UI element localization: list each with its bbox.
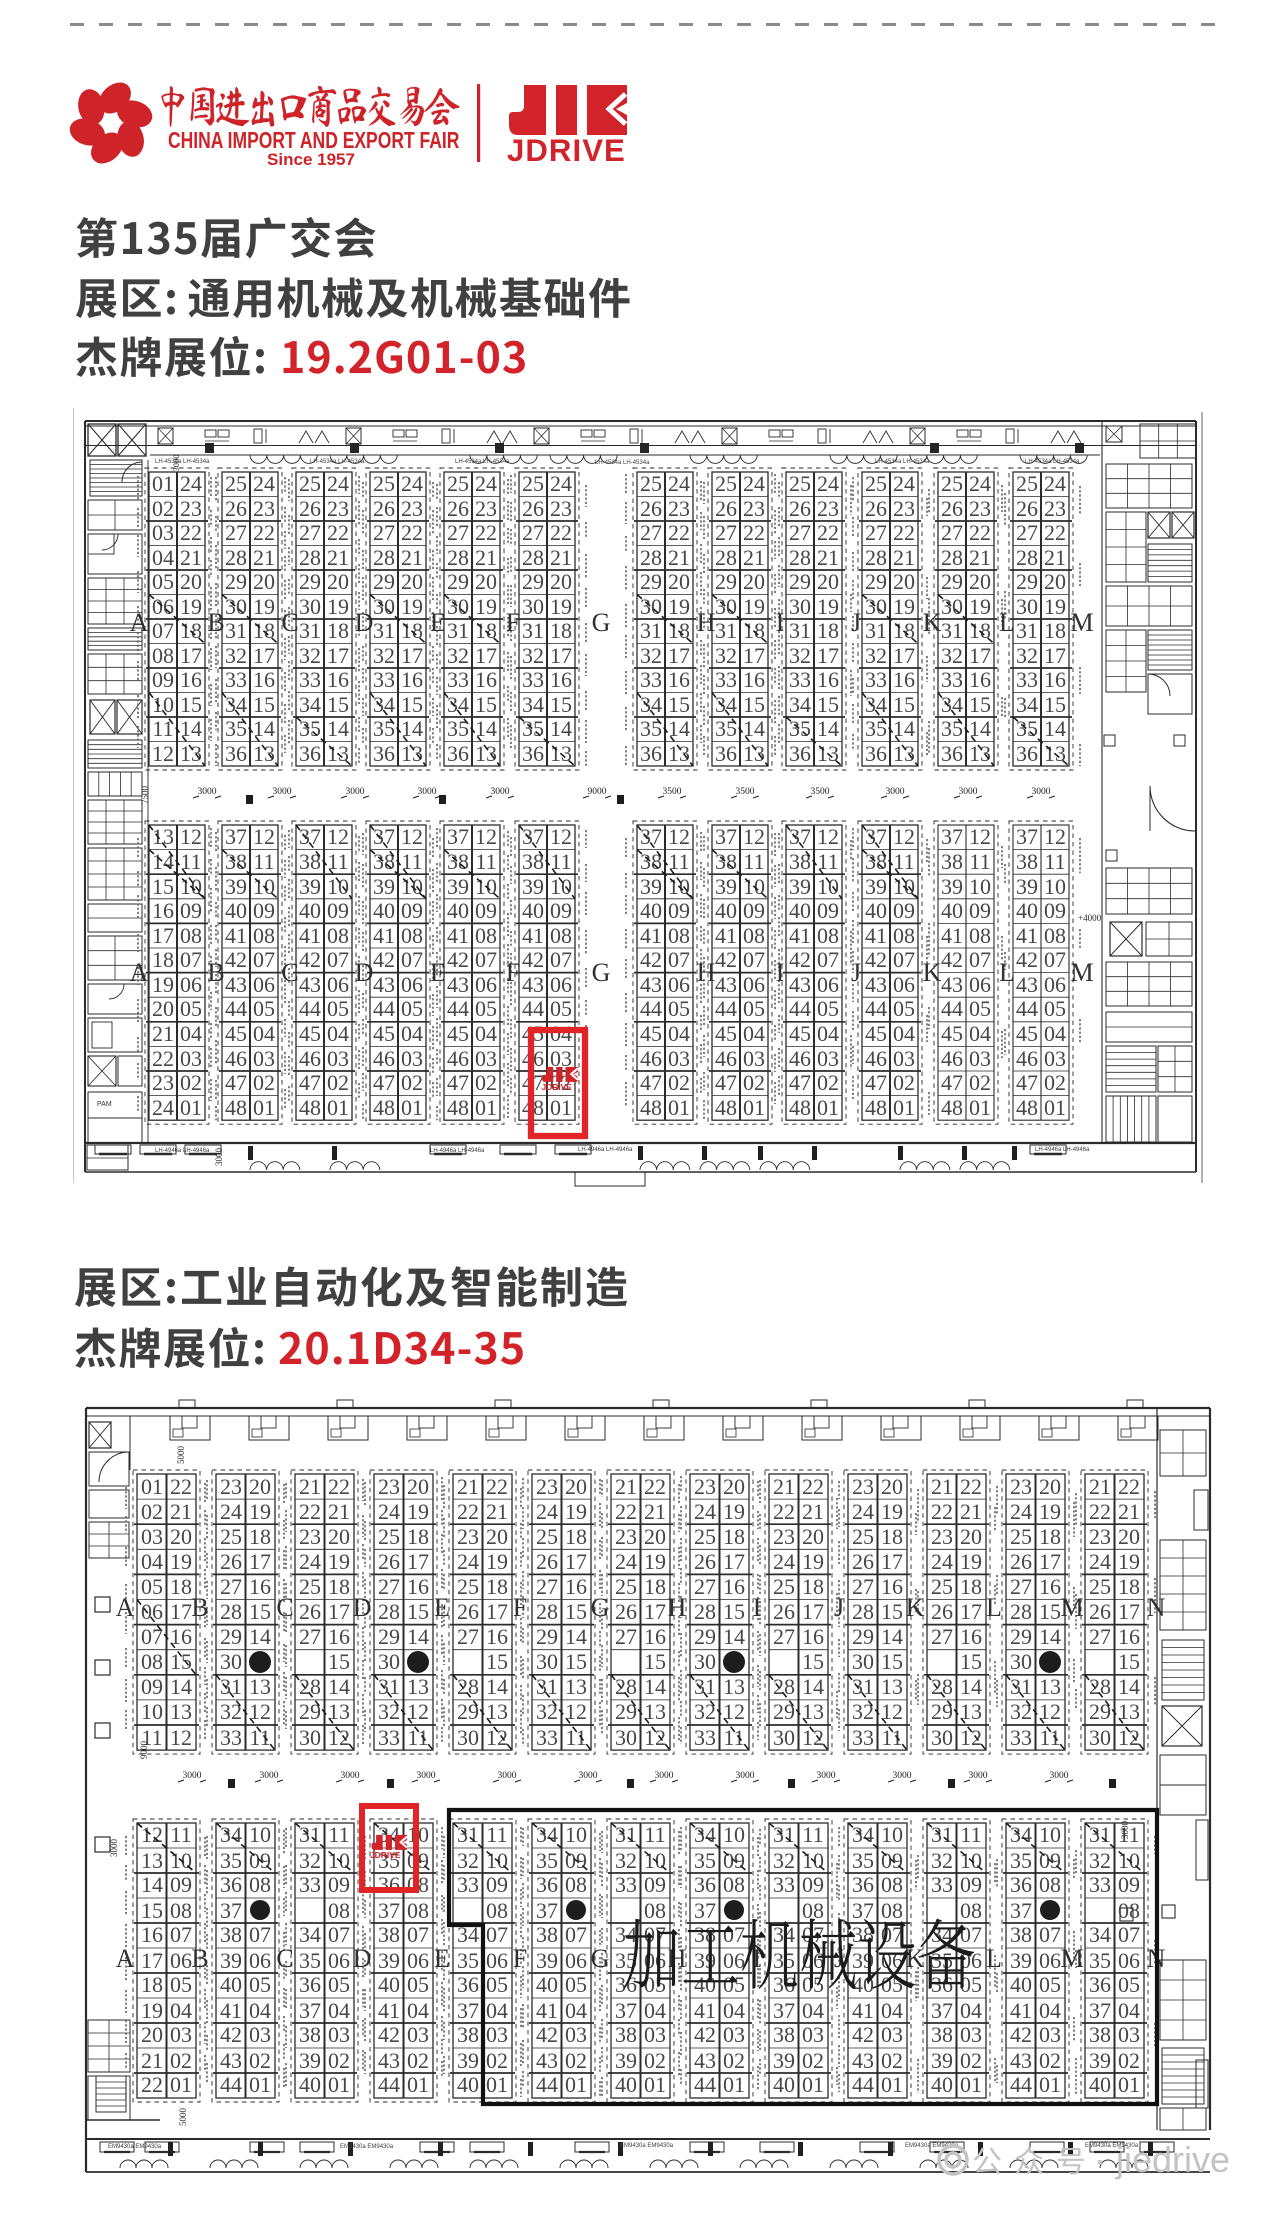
svg-text:26: 26 bbox=[865, 496, 887, 521]
svg-text:23: 23 bbox=[931, 1524, 953, 1549]
svg-text:A: A bbox=[130, 608, 149, 637]
svg-text:45: 45 bbox=[941, 1021, 963, 1046]
svg-text:12: 12 bbox=[550, 824, 572, 849]
svg-text:13: 13 bbox=[475, 741, 497, 766]
svg-text:34: 34 bbox=[852, 1822, 874, 1847]
svg-text:24: 24 bbox=[378, 1499, 400, 1524]
svg-text:07: 07 bbox=[550, 947, 572, 972]
svg-text:03: 03 bbox=[644, 2022, 666, 2047]
svg-text:08: 08 bbox=[1118, 1898, 1140, 1923]
svg-text:08: 08 bbox=[1044, 923, 1066, 948]
svg-text:17: 17 bbox=[253, 643, 275, 668]
svg-text:04: 04 bbox=[802, 1998, 824, 2023]
svg-text:19: 19 bbox=[141, 1998, 163, 2023]
svg-text:08: 08 bbox=[141, 1649, 163, 1674]
svg-text:25: 25 bbox=[865, 471, 887, 496]
svg-text:08: 08 bbox=[723, 1872, 745, 1897]
svg-text:G: G bbox=[591, 1944, 610, 1973]
svg-text:31: 31 bbox=[1016, 618, 1038, 643]
svg-text:40: 40 bbox=[522, 898, 544, 923]
svg-text:19: 19 bbox=[401, 594, 423, 619]
svg-text:03: 03 bbox=[881, 2022, 903, 2047]
svg-text:47: 47 bbox=[715, 1070, 737, 1095]
svg-text:H: H bbox=[668, 1593, 687, 1622]
svg-text:43: 43 bbox=[865, 972, 887, 997]
svg-text:40: 40 bbox=[789, 898, 811, 923]
svg-text:01: 01 bbox=[817, 1095, 839, 1120]
svg-text:D: D bbox=[353, 1593, 372, 1622]
svg-text:23: 23 bbox=[773, 1524, 795, 1549]
svg-text:09: 09 bbox=[550, 898, 572, 923]
svg-text:19: 19 bbox=[969, 594, 991, 619]
svg-text:34: 34 bbox=[615, 1922, 637, 1947]
svg-text:17: 17 bbox=[152, 923, 174, 948]
svg-text:25: 25 bbox=[373, 471, 395, 496]
svg-text:40: 40 bbox=[694, 1972, 716, 1997]
svg-text:3000: 3000 bbox=[1050, 1771, 1069, 1781]
svg-text:21: 21 bbox=[1044, 545, 1066, 570]
svg-text:03: 03 bbox=[328, 2022, 350, 2047]
svg-text:3000: 3000 bbox=[109, 1839, 119, 1858]
svg-text:20: 20 bbox=[141, 2022, 163, 2047]
svg-text:47: 47 bbox=[789, 1070, 811, 1095]
svg-text:33: 33 bbox=[1010, 1725, 1032, 1750]
svg-text:39: 39 bbox=[715, 874, 737, 899]
svg-text:16: 16 bbox=[817, 667, 839, 692]
svg-text:06: 06 bbox=[152, 594, 174, 619]
svg-text:04: 04 bbox=[407, 1998, 429, 2023]
svg-text:12: 12 bbox=[817, 824, 839, 849]
svg-text:26: 26 bbox=[220, 1549, 242, 1574]
svg-text:D: D bbox=[355, 958, 374, 987]
svg-text:18: 18 bbox=[1039, 1524, 1061, 1549]
svg-text:14: 14 bbox=[1118, 1674, 1140, 1699]
svg-text:38: 38 bbox=[1089, 2022, 1111, 2047]
svg-text:29: 29 bbox=[1016, 569, 1038, 594]
svg-text:30: 30 bbox=[773, 1725, 795, 1750]
svg-text:05: 05 bbox=[1039, 1972, 1061, 1997]
svg-text:19: 19 bbox=[881, 1499, 903, 1524]
svg-text:18: 18 bbox=[152, 947, 174, 972]
svg-text:26: 26 bbox=[694, 1549, 716, 1574]
svg-text:14: 14 bbox=[565, 1624, 587, 1649]
svg-text:30: 30 bbox=[378, 1649, 400, 1674]
svg-text:02: 02 bbox=[893, 1070, 915, 1095]
svg-text:02: 02 bbox=[960, 2048, 982, 2073]
svg-text:K: K bbox=[923, 608, 942, 637]
svg-text:13: 13 bbox=[881, 1674, 903, 1699]
svg-text:38: 38 bbox=[378, 1922, 400, 1947]
svg-text:3500: 3500 bbox=[736, 787, 755, 797]
svg-text:16: 16 bbox=[644, 1624, 666, 1649]
svg-text:13: 13 bbox=[141, 1848, 163, 1873]
svg-text:05: 05 bbox=[141, 1574, 163, 1599]
svg-text:33: 33 bbox=[715, 667, 737, 692]
svg-text:22: 22 bbox=[401, 520, 423, 545]
svg-text:43: 43 bbox=[1016, 972, 1038, 997]
svg-text:28: 28 bbox=[789, 545, 811, 570]
svg-text:05: 05 bbox=[817, 996, 839, 1021]
svg-text:31: 31 bbox=[715, 618, 737, 643]
svg-text:20: 20 bbox=[893, 569, 915, 594]
svg-text:L: L bbox=[999, 958, 1015, 987]
svg-text:24: 24 bbox=[220, 1499, 242, 1524]
svg-text:01: 01 bbox=[141, 1474, 163, 1499]
svg-text:B: B bbox=[191, 1593, 208, 1622]
svg-text:12: 12 bbox=[969, 824, 991, 849]
svg-text:46: 46 bbox=[225, 1046, 247, 1071]
svg-text:15: 15 bbox=[401, 692, 423, 717]
svg-text:K: K bbox=[906, 1593, 925, 1622]
svg-text:01: 01 bbox=[407, 2072, 429, 2097]
svg-text:03: 03 bbox=[407, 2022, 429, 2047]
svg-text:J: J bbox=[851, 608, 861, 637]
svg-text:26: 26 bbox=[773, 1599, 795, 1624]
svg-text:40: 40 bbox=[715, 898, 737, 923]
svg-text:08: 08 bbox=[328, 1898, 350, 1923]
svg-text:17: 17 bbox=[486, 1599, 508, 1624]
svg-text:33: 33 bbox=[225, 667, 247, 692]
svg-text:18: 18 bbox=[723, 1524, 745, 1549]
svg-text:29: 29 bbox=[852, 1624, 874, 1649]
svg-text:02: 02 bbox=[743, 1070, 765, 1095]
svg-text:22: 22 bbox=[893, 520, 915, 545]
svg-text:36: 36 bbox=[299, 1972, 321, 1997]
svg-text:27: 27 bbox=[1089, 1624, 1111, 1649]
svg-text:20: 20 bbox=[180, 569, 202, 594]
svg-text:21: 21 bbox=[327, 545, 349, 570]
svg-text:14: 14 bbox=[881, 1624, 903, 1649]
svg-text:L: L bbox=[986, 1944, 1002, 1973]
svg-text:34: 34 bbox=[447, 692, 469, 717]
svg-text:02: 02 bbox=[475, 1070, 497, 1095]
svg-text:19: 19 bbox=[668, 594, 690, 619]
svg-text:06: 06 bbox=[668, 972, 690, 997]
svg-text:02: 02 bbox=[486, 2048, 508, 2073]
svg-text:25: 25 bbox=[1010, 1524, 1032, 1549]
svg-text:22: 22 bbox=[550, 520, 572, 545]
svg-text:39: 39 bbox=[1089, 2048, 1111, 2073]
svg-text:09: 09 bbox=[1118, 1872, 1140, 1897]
svg-text:31: 31 bbox=[225, 618, 247, 643]
svg-text:41: 41 bbox=[225, 923, 247, 948]
svg-text:03: 03 bbox=[802, 2022, 824, 2047]
svg-text:19: 19 bbox=[565, 1499, 587, 1524]
svg-text:23: 23 bbox=[378, 1474, 400, 1499]
svg-text:19: 19 bbox=[475, 594, 497, 619]
svg-text:12: 12 bbox=[253, 824, 275, 849]
svg-text:32: 32 bbox=[615, 1848, 637, 1873]
svg-text:09: 09 bbox=[802, 1872, 824, 1897]
svg-text:12: 12 bbox=[743, 824, 765, 849]
svg-text:06: 06 bbox=[401, 972, 423, 997]
svg-text:09: 09 bbox=[152, 667, 174, 692]
svg-text:07: 07 bbox=[328, 1922, 350, 1947]
svg-text:03: 03 bbox=[969, 1046, 991, 1071]
svg-text:01: 01 bbox=[644, 2072, 666, 2097]
svg-text:42: 42 bbox=[941, 947, 963, 972]
svg-text:05: 05 bbox=[969, 996, 991, 1021]
svg-text:30: 30 bbox=[640, 594, 662, 619]
svg-text:15: 15 bbox=[550, 692, 572, 717]
svg-text:H: H bbox=[697, 958, 716, 987]
svg-text:28: 28 bbox=[447, 545, 469, 570]
svg-text:44: 44 bbox=[1016, 996, 1038, 1021]
svg-text:I: I bbox=[776, 608, 785, 637]
svg-text:B: B bbox=[207, 958, 224, 987]
svg-text:20: 20 bbox=[401, 569, 423, 594]
svg-text:04: 04 bbox=[817, 1021, 839, 1046]
svg-text:04: 04 bbox=[1118, 1998, 1140, 2023]
svg-text:30: 30 bbox=[1016, 594, 1038, 619]
svg-text:02: 02 bbox=[180, 1070, 202, 1095]
svg-text:5000: 5000 bbox=[176, 1446, 186, 1465]
svg-text:36: 36 bbox=[789, 741, 811, 766]
svg-text:14: 14 bbox=[1044, 716, 1066, 741]
svg-text:05: 05 bbox=[486, 1972, 508, 1997]
svg-text:03: 03 bbox=[893, 1046, 915, 1071]
svg-text:B: B bbox=[207, 608, 224, 637]
svg-text:25: 25 bbox=[931, 1574, 953, 1599]
svg-text:46: 46 bbox=[299, 1046, 321, 1071]
svg-text:32: 32 bbox=[789, 643, 811, 668]
svg-text:08: 08 bbox=[249, 1872, 271, 1897]
svg-text:38: 38 bbox=[1016, 849, 1038, 874]
svg-text:33: 33 bbox=[220, 1725, 242, 1750]
svg-text:05: 05 bbox=[475, 996, 497, 1021]
svg-text:23: 23 bbox=[893, 496, 915, 521]
svg-text:02: 02 bbox=[152, 496, 174, 521]
svg-text:26: 26 bbox=[1089, 1599, 1111, 1624]
svg-text:36: 36 bbox=[299, 741, 321, 766]
svg-text:09: 09 bbox=[644, 1872, 666, 1897]
svg-text:27: 27 bbox=[1010, 1574, 1032, 1599]
svg-text:17: 17 bbox=[802, 1599, 824, 1624]
svg-text:36: 36 bbox=[640, 741, 662, 766]
svg-text:48: 48 bbox=[789, 1095, 811, 1120]
svg-text:05: 05 bbox=[253, 996, 275, 1021]
svg-text:03: 03 bbox=[960, 2022, 982, 2047]
svg-text:02: 02 bbox=[723, 2048, 745, 2073]
svg-text:31: 31 bbox=[773, 1822, 795, 1847]
svg-text:07: 07 bbox=[1118, 1922, 1140, 1947]
svg-text:35: 35 bbox=[1010, 1848, 1032, 1873]
svg-text:29: 29 bbox=[378, 1624, 400, 1649]
svg-text:23: 23 bbox=[550, 496, 572, 521]
svg-text:37: 37 bbox=[522, 824, 544, 849]
svg-text:LH-4534a LH-4534a: LH-4534a LH-4534a bbox=[155, 459, 210, 465]
svg-text:H: H bbox=[668, 1944, 687, 1973]
svg-text:32: 32 bbox=[715, 643, 737, 668]
svg-text:36: 36 bbox=[447, 741, 469, 766]
svg-text:05: 05 bbox=[723, 1972, 745, 1997]
svg-text:28: 28 bbox=[378, 1599, 400, 1624]
svg-text:04: 04 bbox=[893, 1021, 915, 1046]
svg-text:12: 12 bbox=[152, 741, 174, 766]
svg-text:09: 09 bbox=[328, 1872, 350, 1897]
svg-text:17: 17 bbox=[141, 1948, 163, 1973]
svg-text:27: 27 bbox=[773, 1624, 795, 1649]
svg-text:07: 07 bbox=[253, 947, 275, 972]
svg-text:08: 08 bbox=[881, 1872, 903, 1897]
svg-text:22: 22 bbox=[328, 1474, 350, 1499]
svg-text:33: 33 bbox=[1089, 1872, 1111, 1897]
svg-text:24: 24 bbox=[536, 1499, 558, 1524]
svg-text:19: 19 bbox=[327, 594, 349, 619]
svg-text:19: 19 bbox=[152, 972, 174, 997]
svg-text:21: 21 bbox=[960, 1499, 982, 1524]
svg-text:24: 24 bbox=[550, 471, 572, 496]
svg-text:09: 09 bbox=[1044, 898, 1066, 923]
svg-text:3000: 3000 bbox=[817, 1771, 836, 1781]
svg-text:12: 12 bbox=[644, 1725, 666, 1750]
svg-text:34: 34 bbox=[694, 1822, 716, 1847]
svg-text:06: 06 bbox=[253, 972, 275, 997]
svg-text:32: 32 bbox=[522, 643, 544, 668]
svg-text:7500: 7500 bbox=[140, 786, 150, 805]
svg-text:37: 37 bbox=[931, 1998, 953, 2023]
svg-text:39: 39 bbox=[522, 874, 544, 899]
svg-text:33: 33 bbox=[522, 667, 544, 692]
svg-text:22: 22 bbox=[457, 1499, 479, 1524]
svg-text:04: 04 bbox=[565, 1998, 587, 2023]
svg-text:15: 15 bbox=[723, 1599, 745, 1624]
svg-text:21: 21 bbox=[170, 1499, 192, 1524]
svg-text:16: 16 bbox=[743, 667, 765, 692]
svg-text:35: 35 bbox=[694, 1848, 716, 1873]
svg-text:42: 42 bbox=[694, 2022, 716, 2047]
svg-text:17: 17 bbox=[328, 1599, 350, 1624]
svg-text:10: 10 bbox=[152, 692, 174, 717]
svg-text:41: 41 bbox=[694, 1998, 716, 2023]
svg-text:12: 12 bbox=[180, 824, 202, 849]
svg-text:21: 21 bbox=[328, 1499, 350, 1524]
svg-text:02: 02 bbox=[1044, 1070, 1066, 1095]
svg-text:04: 04 bbox=[475, 1021, 497, 1046]
svg-text:07: 07 bbox=[893, 947, 915, 972]
svg-text:35: 35 bbox=[852, 1848, 874, 1873]
svg-text:46: 46 bbox=[941, 1046, 963, 1071]
svg-text:19: 19 bbox=[644, 1549, 666, 1574]
svg-text:03: 03 bbox=[253, 1046, 275, 1071]
svg-text:37: 37 bbox=[715, 824, 737, 849]
svg-text:02: 02 bbox=[327, 1070, 349, 1095]
svg-text:D: D bbox=[353, 1944, 372, 1973]
svg-text:19: 19 bbox=[407, 1499, 429, 1524]
svg-text:15: 15 bbox=[881, 1649, 903, 1674]
svg-text:08: 08 bbox=[550, 923, 572, 948]
svg-text:31: 31 bbox=[299, 618, 321, 643]
svg-text:01: 01 bbox=[550, 1095, 572, 1120]
svg-text:12: 12 bbox=[141, 1822, 163, 1847]
svg-text:43: 43 bbox=[941, 972, 963, 997]
svg-text:24: 24 bbox=[931, 1549, 953, 1574]
svg-text:22: 22 bbox=[773, 1499, 795, 1524]
svg-text:33: 33 bbox=[1016, 667, 1038, 692]
svg-text:23: 23 bbox=[668, 496, 690, 521]
svg-text:21: 21 bbox=[802, 1499, 824, 1524]
svg-text:29: 29 bbox=[1010, 1624, 1032, 1649]
svg-text:29: 29 bbox=[373, 569, 395, 594]
svg-text:15: 15 bbox=[170, 1649, 192, 1674]
svg-text:33: 33 bbox=[694, 1725, 716, 1750]
svg-text:26: 26 bbox=[941, 496, 963, 521]
svg-text:43: 43 bbox=[299, 972, 321, 997]
svg-text:40: 40 bbox=[457, 2072, 479, 2097]
svg-text:38: 38 bbox=[447, 849, 469, 874]
svg-text:13: 13 bbox=[401, 741, 423, 766]
svg-text:17: 17 bbox=[170, 1599, 192, 1624]
svg-text:23: 23 bbox=[969, 496, 991, 521]
svg-text:19: 19 bbox=[1044, 594, 1066, 619]
svg-text:21: 21 bbox=[644, 1499, 666, 1524]
svg-text:41: 41 bbox=[865, 923, 887, 948]
svg-text:40: 40 bbox=[773, 2072, 795, 2097]
svg-text:40: 40 bbox=[225, 898, 247, 923]
svg-text:22: 22 bbox=[1044, 520, 1066, 545]
svg-text:04: 04 bbox=[401, 1021, 423, 1046]
svg-text:3000: 3000 bbox=[346, 787, 365, 797]
svg-text:16: 16 bbox=[893, 667, 915, 692]
svg-text:14: 14 bbox=[960, 1674, 982, 1699]
svg-text:38: 38 bbox=[225, 849, 247, 874]
svg-text:02: 02 bbox=[881, 2048, 903, 2073]
svg-text:16: 16 bbox=[180, 667, 202, 692]
svg-text:18: 18 bbox=[817, 618, 839, 643]
svg-text:JDRIVE: JDRIVE bbox=[541, 1082, 572, 1092]
svg-text:41: 41 bbox=[852, 1998, 874, 2023]
svg-text:15: 15 bbox=[802, 1649, 824, 1674]
svg-text:36: 36 bbox=[373, 741, 395, 766]
svg-text:16: 16 bbox=[475, 667, 497, 692]
svg-text:15: 15 bbox=[328, 1649, 350, 1674]
svg-text:12: 12 bbox=[1118, 1725, 1140, 1750]
svg-text:17: 17 bbox=[475, 643, 497, 668]
svg-text:04: 04 bbox=[253, 1021, 275, 1046]
svg-text:25: 25 bbox=[536, 1524, 558, 1549]
svg-text:47: 47 bbox=[640, 1070, 662, 1095]
svg-text:31: 31 bbox=[378, 1674, 400, 1699]
svg-text:Since 1957: Since 1957 bbox=[267, 150, 355, 169]
svg-text:11: 11 bbox=[723, 1725, 744, 1750]
svg-text:02: 02 bbox=[644, 2048, 666, 2073]
svg-text:08: 08 bbox=[253, 923, 275, 948]
svg-text:30: 30 bbox=[225, 594, 247, 619]
svg-text:04: 04 bbox=[723, 1998, 745, 2023]
svg-text:34: 34 bbox=[941, 692, 963, 717]
svg-text:3000: 3000 bbox=[273, 787, 292, 797]
svg-text:01: 01 bbox=[565, 2072, 587, 2097]
svg-text:42: 42 bbox=[865, 947, 887, 972]
svg-text:38: 38 bbox=[615, 2022, 637, 2047]
svg-text:24: 24 bbox=[1010, 1499, 1032, 1524]
svg-text:40: 40 bbox=[299, 2072, 321, 2097]
svg-text:23: 23 bbox=[694, 1474, 716, 1499]
svg-text:47: 47 bbox=[373, 1070, 395, 1095]
svg-text:28: 28 bbox=[220, 1599, 242, 1624]
svg-text:43: 43 bbox=[378, 2048, 400, 2073]
svg-text:01: 01 bbox=[802, 2072, 824, 2097]
svg-text:12: 12 bbox=[960, 1725, 982, 1750]
svg-text:11: 11 bbox=[475, 849, 496, 874]
svg-text:08: 08 bbox=[401, 923, 423, 948]
svg-text:17: 17 bbox=[550, 643, 572, 668]
svg-text:24: 24 bbox=[401, 471, 423, 496]
svg-text:09: 09 bbox=[668, 898, 690, 923]
svg-text:A: A bbox=[116, 1944, 135, 1973]
svg-text:21: 21 bbox=[550, 545, 572, 570]
svg-text:37: 37 bbox=[640, 824, 662, 849]
